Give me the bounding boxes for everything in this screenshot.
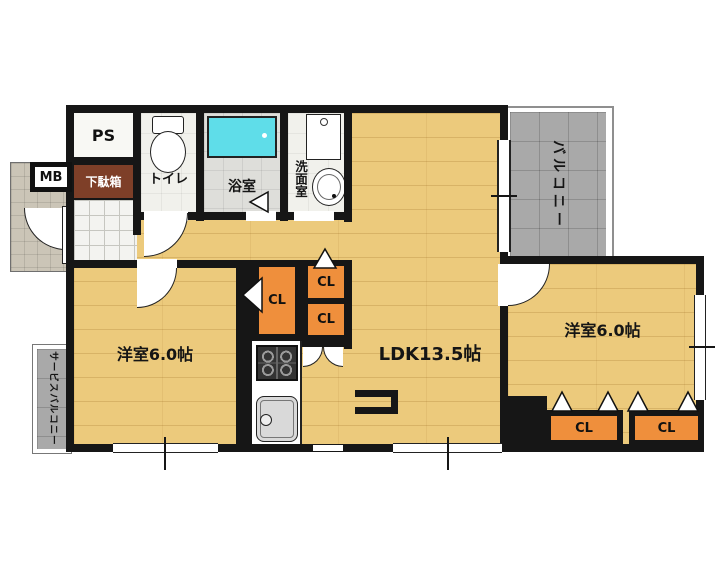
- closet-label: CL: [317, 312, 335, 327]
- wall: [344, 105, 352, 222]
- shoe-cabinet: 下駄箱: [74, 165, 133, 200]
- ps-label: PS: [92, 126, 115, 145]
- folding-door-icon: [626, 389, 650, 413]
- folding-door-icon: [240, 276, 264, 314]
- washroom-label: 洗面室: [289, 139, 307, 219]
- wall: [66, 157, 141, 165]
- window-tick: [689, 346, 715, 348]
- wall: [500, 396, 547, 452]
- wall: [280, 105, 288, 221]
- window-tick: [447, 437, 449, 470]
- window: [694, 295, 706, 400]
- entrance-tile: [74, 200, 137, 260]
- meter-box-label: MB: [40, 170, 63, 185]
- closet-label: CL: [658, 421, 676, 436]
- kitchen-partition-wall: [355, 407, 398, 414]
- wall-vent: [313, 445, 343, 451]
- closet: CL: [302, 298, 350, 341]
- room-ps: PS: [74, 113, 133, 157]
- window-tick: [164, 437, 166, 470]
- east-room-label: 洋室6.0帖: [530, 322, 675, 340]
- closet: CL: [629, 410, 704, 446]
- floor-plan: バルコニー サービスバルコニー PS 下駄箱: [0, 0, 720, 576]
- kitchen-faucet-icon: [260, 414, 272, 426]
- wall: [500, 256, 704, 264]
- bathtub-drain-icon: [262, 133, 267, 138]
- vanity-sink-inner-icon: [317, 174, 341, 200]
- toilet-bowl-icon: [150, 131, 186, 173]
- window: [113, 443, 218, 453]
- closet-label: CL: [317, 275, 335, 290]
- folding-door-icon: [550, 389, 574, 413]
- closet-label: CL: [268, 293, 286, 308]
- wall: [196, 105, 204, 221]
- folding-door-icon: [312, 246, 338, 270]
- stove-icon: [256, 345, 298, 381]
- folding-door-icon: [676, 389, 700, 413]
- toilet-label: トイレ: [141, 173, 196, 188]
- service-balcony-label: サービスバルコニー: [47, 332, 58, 464]
- vanity-faucet-icon: [332, 194, 336, 198]
- ldk-label: LDK13.5帖: [360, 345, 500, 366]
- balcony-label: バルコニー: [550, 135, 566, 235]
- bathroom-label: 浴室: [204, 179, 280, 195]
- shoe-cabinet-label: 下駄箱: [85, 173, 121, 190]
- closet: CL: [545, 410, 623, 446]
- meter-box: MB: [30, 162, 72, 192]
- washing-machine-dial-icon: [320, 118, 328, 126]
- window-tick: [491, 195, 517, 197]
- folding-door-icon: [596, 389, 620, 413]
- closet-label: CL: [575, 421, 593, 436]
- west-room-label: 洋室6.0帖: [85, 346, 225, 364]
